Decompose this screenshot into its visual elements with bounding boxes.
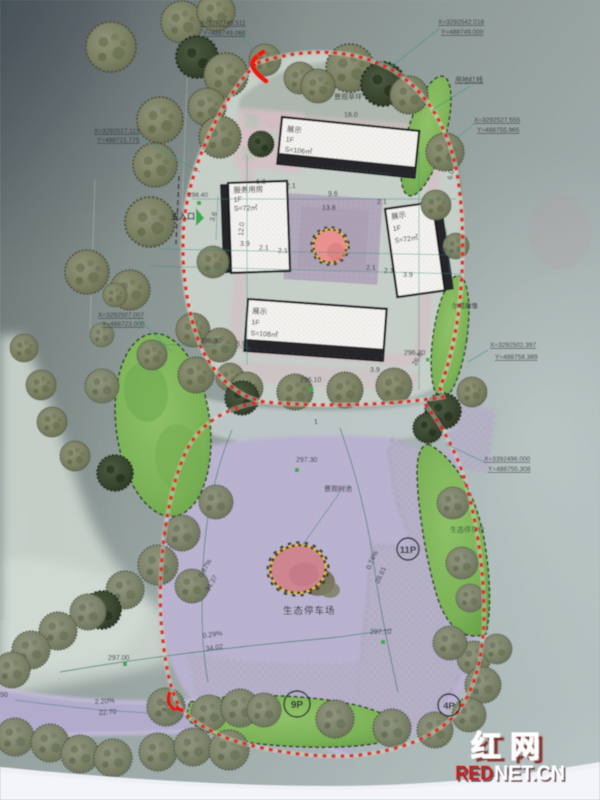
svg-text:RED: RED bbox=[455, 762, 493, 785]
svg-text:Y=488758.389: Y=488758.389 bbox=[495, 354, 538, 361]
svg-text:6.0: 6.0 bbox=[256, 179, 266, 186]
svg-text:X=3292527.115: X=3292527.115 bbox=[94, 128, 140, 135]
svg-text:生态停车场: 生态停车场 bbox=[283, 605, 336, 617]
svg-text:2.1: 2.1 bbox=[286, 183, 296, 190]
svg-text:1F: 1F bbox=[233, 197, 241, 204]
svg-text:尔塔雕像: 尔塔雕像 bbox=[452, 301, 479, 310]
svg-text:X=3292527.555: X=3292527.555 bbox=[474, 117, 520, 124]
svg-text:景观树池: 景观树池 bbox=[324, 484, 352, 493]
svg-text:景观草坪: 景观草坪 bbox=[334, 92, 362, 101]
svg-text:2.1: 2.1 bbox=[259, 245, 269, 252]
svg-text:主入口: 主入口 bbox=[171, 211, 195, 221]
svg-text:1F: 1F bbox=[251, 319, 260, 327]
svg-text:3.9: 3.9 bbox=[403, 272, 413, 279]
svg-text:1: 1 bbox=[314, 419, 318, 426]
svg-text:298.30: 298.30 bbox=[200, 338, 222, 345]
svg-text:X=3292502.397: X=3292502.397 bbox=[490, 342, 536, 349]
svg-text:展示: 展示 bbox=[286, 125, 302, 136]
svg-text:2.1: 2.1 bbox=[384, 268, 394, 275]
svg-text:Y=488723.000: Y=488723.000 bbox=[102, 321, 145, 328]
svg-text:1F: 1F bbox=[392, 225, 401, 233]
svg-text:X=3292746.511: X=3292746.511 bbox=[200, 20, 246, 27]
svg-text:2.20%: 2.20% bbox=[95, 698, 115, 706]
svg-text:297.00: 297.00 bbox=[108, 655, 130, 662]
svg-text:9P: 9P bbox=[291, 700, 304, 711]
svg-text:297.30: 297.30 bbox=[296, 457, 318, 464]
svg-text:3.9: 3.9 bbox=[370, 367, 380, 374]
svg-text:22.70: 22.70 bbox=[99, 709, 117, 717]
svg-text:X=3292542.018: X=3292542.018 bbox=[438, 19, 484, 26]
svg-text:2.1: 2.1 bbox=[366, 265, 376, 272]
svg-text:18.0: 18.0 bbox=[344, 112, 358, 119]
svg-text:NET.CN: NET.CN bbox=[494, 762, 565, 785]
svg-text:X=3392496.000: X=3392496.000 bbox=[484, 456, 530, 463]
svg-text:2.1: 2.1 bbox=[377, 199, 387, 206]
svg-text:Y=488755.308: Y=488755.308 bbox=[488, 466, 531, 473]
svg-text:X=3292507.007: X=3292507.007 bbox=[98, 312, 144, 319]
svg-text:13.8: 13.8 bbox=[322, 205, 336, 212]
svg-text:11P: 11P bbox=[400, 545, 417, 556]
svg-text:Y=488749.066: Y=488749.066 bbox=[203, 30, 246, 37]
svg-text:生态停车位: 生态停车位 bbox=[450, 525, 485, 534]
svg-text:展示: 展示 bbox=[252, 306, 268, 316]
svg-text:3.9: 3.9 bbox=[240, 241, 250, 248]
svg-text:50: 50 bbox=[0, 692, 8, 699]
svg-text:3.9: 3.9 bbox=[236, 341, 246, 348]
svg-text:296.10: 296.10 bbox=[300, 377, 322, 384]
svg-text:297.10: 297.10 bbox=[370, 629, 392, 636]
svg-text:S=72㎡: S=72㎡ bbox=[234, 204, 258, 213]
svg-text:12.0: 12.0 bbox=[238, 222, 246, 236]
svg-text:1F: 1F bbox=[285, 137, 294, 145]
svg-text:4P: 4P bbox=[443, 701, 455, 712]
svg-text:298.40: 298.40 bbox=[188, 192, 208, 199]
svg-text:红网: 红网 bbox=[471, 731, 549, 764]
svg-text:Y=488721.775: Y=488721.775 bbox=[97, 137, 140, 144]
svg-text:Y=488749.000: Y=488749.000 bbox=[441, 29, 484, 36]
svg-text:2.1: 2.1 bbox=[278, 248, 288, 255]
svg-text:用地红线: 用地红线 bbox=[455, 75, 483, 84]
svg-text:Y=488755.965: Y=488755.965 bbox=[477, 127, 520, 134]
svg-text:9.6: 9.6 bbox=[328, 191, 338, 198]
